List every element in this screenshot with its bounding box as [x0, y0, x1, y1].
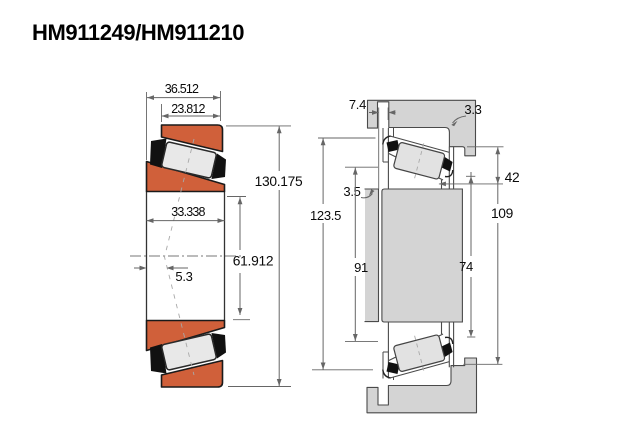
svg-text:23.812: 23.812	[171, 102, 205, 116]
svg-text:5.3: 5.3	[175, 269, 192, 284]
svg-text:33.338: 33.338	[171, 205, 205, 219]
svg-text:91: 91	[354, 260, 368, 275]
svg-text:HM911249/HM911210: HM911249/HM911210	[32, 20, 244, 45]
svg-text:3.3: 3.3	[464, 102, 481, 117]
svg-text:109: 109	[491, 206, 514, 221]
svg-text:123.5: 123.5	[310, 208, 341, 223]
svg-text:3.5: 3.5	[343, 184, 360, 199]
svg-text:130.175: 130.175	[255, 174, 303, 189]
svg-text:74: 74	[459, 259, 473, 274]
svg-text:36.512: 36.512	[165, 82, 199, 96]
svg-text:42: 42	[505, 170, 520, 185]
svg-text:61.912: 61.912	[233, 254, 273, 269]
svg-text:7.4: 7.4	[349, 97, 366, 112]
